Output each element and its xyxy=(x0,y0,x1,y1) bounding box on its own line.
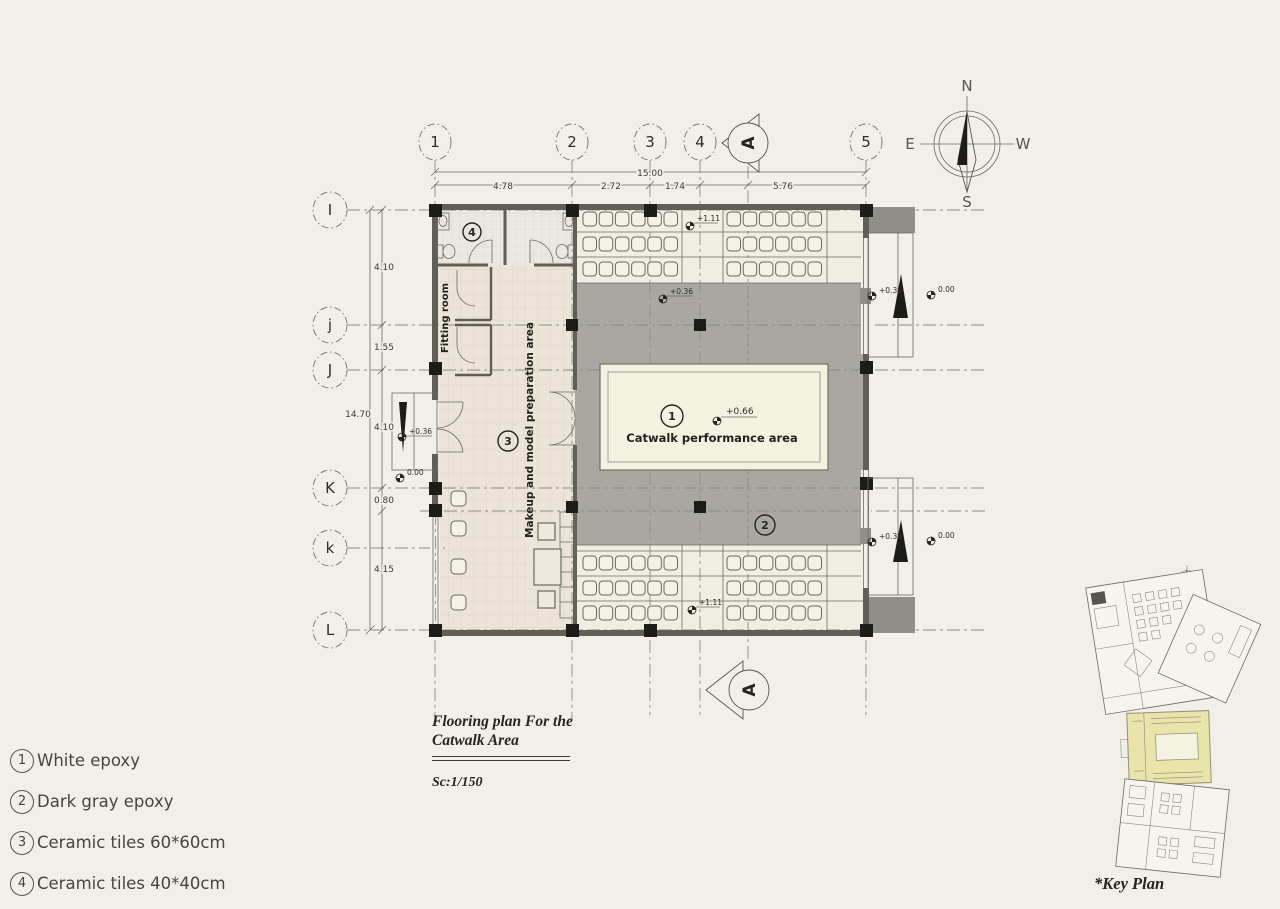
dim-span-K: 0.80 xyxy=(374,496,394,506)
drawing-sheet: { "colors": { "background": "#f1efe7", "… xyxy=(0,0,1280,905)
legend-num-1: 1 xyxy=(10,749,34,773)
dim-span-j-J: 1.55 xyxy=(374,343,394,353)
drawing-scale: Sc:1/150 xyxy=(432,775,602,791)
grid-row-k: k xyxy=(326,539,335,557)
dim-span-4-5: 5.76 xyxy=(773,182,793,192)
dim-left-total: 14.70 xyxy=(345,410,371,420)
legend-num-4: 4 xyxy=(10,872,34,896)
fitting-room-label: Fitting room xyxy=(440,283,451,353)
title-block: Flooring plan For the Catwalk Area Sc:1/… xyxy=(432,712,602,791)
legend-item-white-epoxy: 1 White epoxy xyxy=(10,740,226,781)
tag-makeup: 3 xyxy=(504,435,512,448)
level-right-top-outer: 0.00 xyxy=(938,285,955,294)
keyplan-building-highlighted xyxy=(1120,711,1211,786)
key-plan-label: *Key Plan xyxy=(1094,874,1164,894)
legend-label-1: White epoxy xyxy=(37,751,140,770)
grid-col-5: 5 xyxy=(861,133,871,151)
level-seating-bottom: +1.11 xyxy=(699,598,722,607)
dim-span-2-3: 2.72 xyxy=(601,182,621,192)
catwalk-area-label: Catwalk performance area xyxy=(626,431,798,445)
level-right-bottom-inner: +0.36 xyxy=(879,532,902,541)
drawing-title-line1: Flooring plan For the xyxy=(432,712,602,731)
legend-label-4: Ceramic tiles 40*40cm xyxy=(37,874,226,893)
level-left-ramp-outer: 0.00 xyxy=(407,468,424,477)
right-ramps: +0.36 0.00 +0.36 0.00 xyxy=(868,233,955,595)
level-right-bottom-outer: 0.00 xyxy=(938,531,955,540)
left-dimension-chain: 4.10 1.55 14.70 4.10 0.80 4.15 xyxy=(345,206,394,634)
section-marker-bottom: A xyxy=(706,661,769,719)
dim-span-k-L: 4.15 xyxy=(374,565,394,575)
tag-dark-gray: 2 xyxy=(761,519,769,532)
grid-row-I: I xyxy=(328,201,332,219)
title-underline xyxy=(432,756,570,761)
left-ramp: +0.36 0.00 xyxy=(392,393,437,482)
grid-col-2: 2 xyxy=(567,133,577,151)
level-catwalk: +0.66 xyxy=(726,407,754,417)
legend-item-ceramic-60: 3 Ceramic tiles 60*60cm xyxy=(10,822,226,863)
section-label-bottom: A xyxy=(740,683,760,697)
grid-row-j: j xyxy=(327,316,332,334)
keyplan-building-top xyxy=(1086,570,1261,715)
legend-num-2: 2 xyxy=(10,790,34,814)
legend-label-3: Ceramic tiles 60*60cm xyxy=(37,833,226,852)
compass-south: S xyxy=(962,193,972,211)
grid-col-1: 1 xyxy=(430,133,440,151)
drawing-title-line2: Catwalk Area xyxy=(432,731,602,750)
compass-east: E xyxy=(905,135,914,153)
tag-toilet: 4 xyxy=(468,226,476,239)
level-gray-area: +0.36 xyxy=(670,287,693,296)
dim-span-3-4: 1.74 xyxy=(665,182,685,192)
key-plan xyxy=(1086,565,1261,877)
grid-col-4: 4 xyxy=(695,133,705,151)
grid-row-L: L xyxy=(326,621,335,639)
legend-label-2: Dark gray epoxy xyxy=(37,792,174,811)
keyplan-building-bottom xyxy=(1116,779,1230,877)
legend-item-dark-gray-epoxy: 2 Dark gray epoxy xyxy=(10,781,226,822)
dim-total-width: 15.00 xyxy=(637,169,663,179)
legend-item-ceramic-40: 4 Ceramic tiles 40*40cm xyxy=(10,863,226,904)
flooring-legend: 1 White epoxy 2 Dark gray epoxy 3 Cerami… xyxy=(10,740,226,904)
grid-row-K: K xyxy=(325,479,336,497)
level-seating-top: +1.11 xyxy=(697,214,720,223)
section-label-top: A xyxy=(739,136,759,150)
grid-col-3: 3 xyxy=(645,133,655,151)
tag-catwalk: 1 xyxy=(668,410,676,423)
legend-num-3: 3 xyxy=(10,831,34,855)
level-left-ramp-inner: +0.36 xyxy=(409,427,432,436)
compass-north: N xyxy=(961,77,972,95)
level-right-top-inner: +0.36 xyxy=(879,286,902,295)
compass-rose: N S E W xyxy=(905,77,1030,211)
grid-row-J: J xyxy=(327,361,332,379)
top-dimension-chain: 15.00 4.78 2.72 1.74 5.76 xyxy=(431,168,870,192)
section-marker-top: A xyxy=(722,114,768,172)
dim-span-J-K: 4.10 xyxy=(374,423,394,433)
makeup-area-label: Makeup and model preparation area xyxy=(524,322,536,538)
compass-west: W xyxy=(1016,135,1031,153)
catwalk-stage xyxy=(600,364,828,470)
dim-span-1-2: 4.78 xyxy=(493,182,513,192)
dim-span-I-j: 4.10 xyxy=(374,263,394,273)
